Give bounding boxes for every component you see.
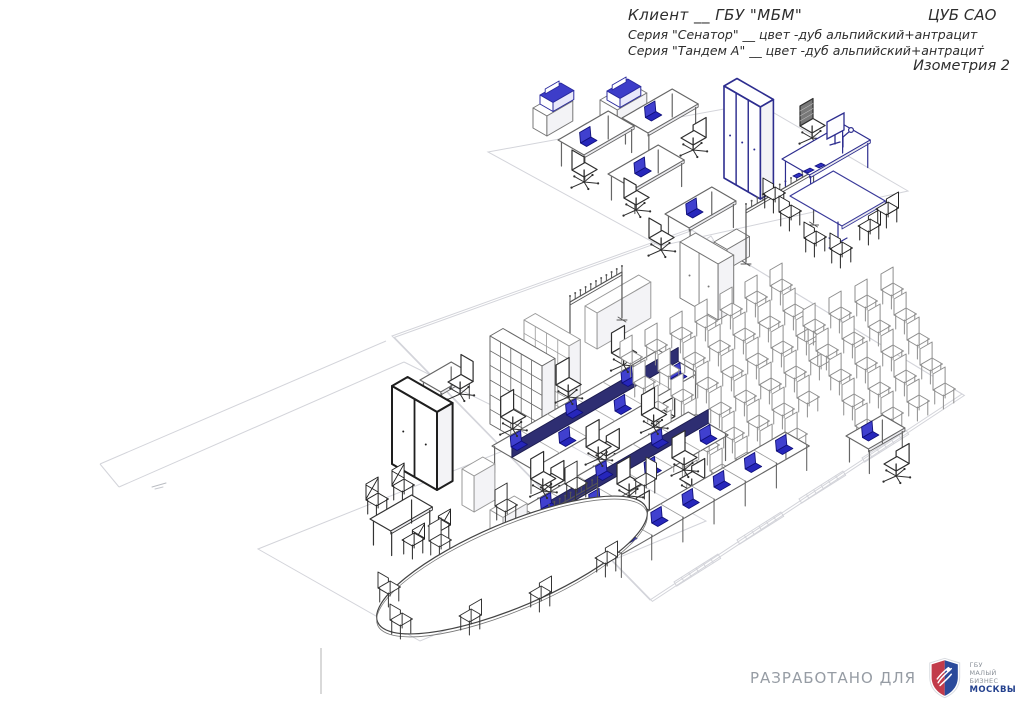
auditorium-chair bbox=[907, 379, 930, 421]
auditorium-chair bbox=[933, 367, 956, 409]
meeting-chair bbox=[804, 222, 827, 257]
mbm-logo: ГБУ МАЛЫЙ БИЗНЕС МОСКВЫ bbox=[926, 655, 1024, 701]
plan-annotation bbox=[152, 483, 166, 489]
logo-text: ГБУ МАЛЫЙ БИЗНЕС МОСКВЫ bbox=[969, 661, 1024, 696]
isometric-office-svg bbox=[0, 0, 1024, 708]
wood-chair bbox=[402, 523, 425, 559]
office-chair bbox=[679, 118, 708, 159]
logo-org: ГБУ bbox=[969, 661, 1024, 669]
corridor-wall-a bbox=[100, 341, 386, 464]
office-desk bbox=[608, 145, 684, 214]
logo-name-1: МАЛЫЙ БИЗНЕС bbox=[969, 669, 1024, 685]
moscow-shield-icon bbox=[926, 655, 963, 701]
door-threshold bbox=[674, 554, 721, 586]
office-chair bbox=[647, 218, 676, 258]
logo-name-2: МОСКВЫ bbox=[969, 685, 1024, 696]
footer-divider-line bbox=[320, 648, 322, 694]
meeting-chair bbox=[830, 233, 853, 268]
office-chair bbox=[882, 444, 911, 485]
corridor-end bbox=[100, 464, 119, 487]
developed-for-label: РАЗРАБОТАНО ДЛЯ bbox=[750, 669, 916, 687]
isometric-office-drawing bbox=[0, 0, 1024, 708]
drawing-sheet: Клиент __ ГБУ "МБМ" ЦУБ САО Серия "Сенат… bbox=[0, 0, 1024, 708]
corridor-wall-b bbox=[119, 362, 404, 487]
footer: РАЗРАБОТАНО ДЛЯ ГБУ МАЛЫЙ БИЗНЕС МОСКВЫ bbox=[750, 655, 1024, 701]
auditorium-chair bbox=[797, 375, 820, 417]
